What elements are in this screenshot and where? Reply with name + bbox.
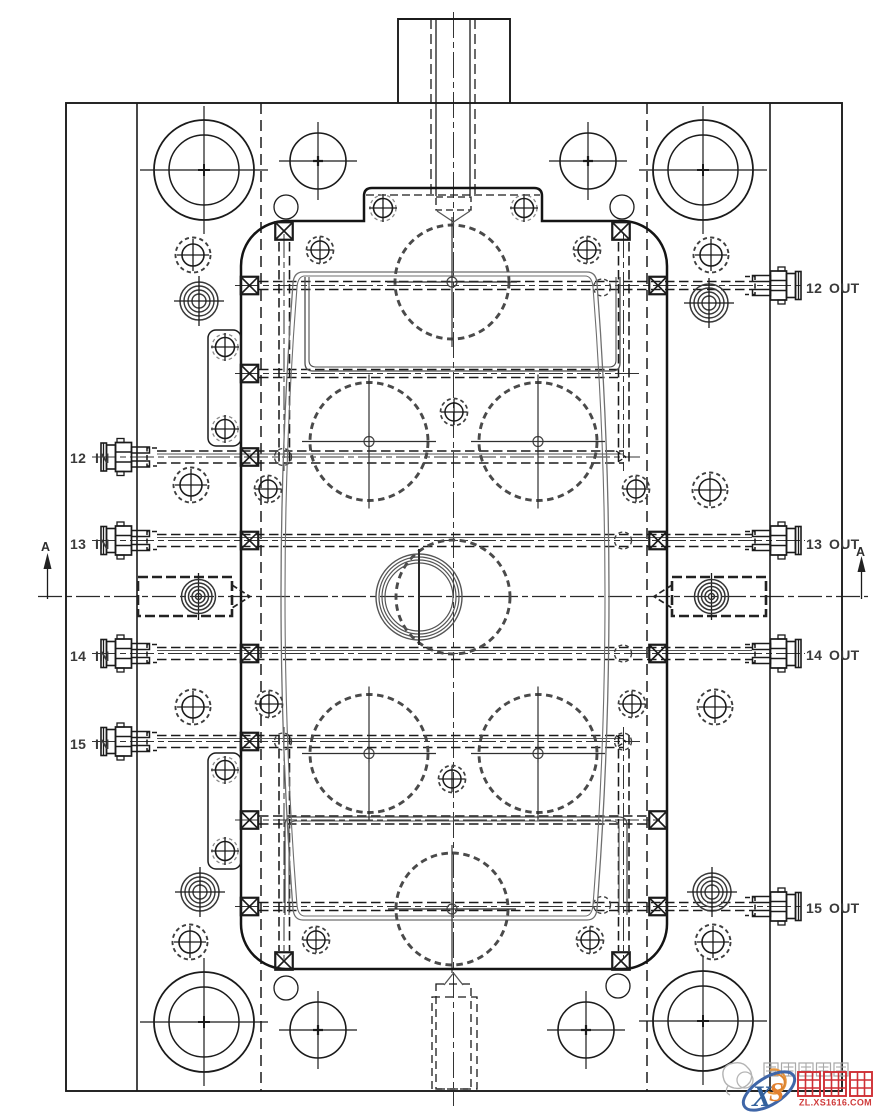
svg-text:IN: IN: [95, 536, 110, 552]
svg-text:OUT: OUT: [829, 647, 860, 663]
svg-text:IN: IN: [95, 736, 110, 752]
svg-text:IN: IN: [95, 648, 110, 664]
svg-text:A: A: [41, 540, 50, 554]
svg-text:15: 15: [806, 900, 822, 916]
svg-text:12: 12: [806, 280, 822, 296]
svg-text:ZL.XS1616.COM: ZL.XS1616.COM: [799, 1098, 872, 1108]
svg-text:13: 13: [70, 536, 86, 552]
svg-text:13: 13: [806, 536, 822, 552]
svg-text:OUT: OUT: [829, 900, 860, 916]
svg-text:12: 12: [70, 450, 86, 466]
svg-text:14: 14: [806, 647, 822, 663]
svg-text:14: 14: [70, 648, 86, 664]
svg-text:S: S: [769, 1077, 784, 1107]
svg-text:IN: IN: [95, 450, 110, 466]
svg-text:OUT: OUT: [829, 280, 860, 296]
svg-text:15: 15: [70, 736, 86, 752]
svg-text:OUT: OUT: [829, 536, 860, 552]
